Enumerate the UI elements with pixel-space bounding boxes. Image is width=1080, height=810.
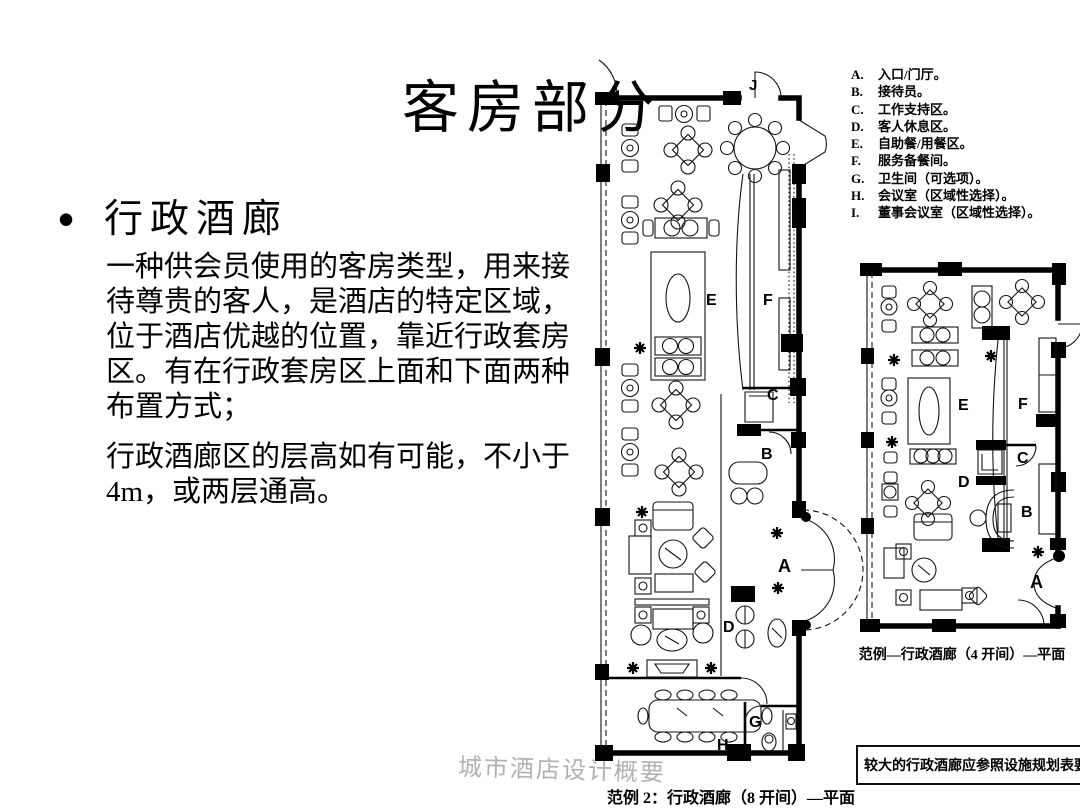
zone-label-j: J xyxy=(749,77,757,94)
legend-label: 卫生间（可选项）。 xyxy=(878,170,1077,187)
sofa xyxy=(920,590,962,610)
window-seating xyxy=(622,364,639,412)
buffet-table xyxy=(919,387,939,435)
sofa xyxy=(629,536,651,574)
legend-key: C. xyxy=(851,101,878,118)
zone-label-e: E xyxy=(706,292,717,309)
diamond-table xyxy=(908,282,953,327)
reception-chair xyxy=(970,510,986,526)
legend-key: F. xyxy=(851,152,878,169)
zone-label-b: B xyxy=(1021,504,1033,521)
booth-table xyxy=(655,337,701,355)
legend-label: 工作支持区。 xyxy=(878,101,1077,118)
plant-icon xyxy=(985,350,997,362)
plant-icon xyxy=(705,662,717,674)
booth-table xyxy=(659,106,710,123)
buffet-zone xyxy=(908,378,950,444)
booth-table xyxy=(972,286,992,328)
floor-plan-small: E F C D B A xyxy=(858,256,1070,640)
console xyxy=(635,599,709,605)
sofa xyxy=(653,502,693,530)
zone-label-d: D xyxy=(723,619,735,636)
note-text: 较大的行政酒廊应参照设施规划表要求 xyxy=(864,755,1080,775)
sink xyxy=(786,714,796,729)
legend-label: 董事会议室（区域性选择）。 xyxy=(878,204,1077,221)
legend-key: A. xyxy=(851,66,878,83)
service-block xyxy=(731,586,755,602)
sideboard xyxy=(647,660,697,677)
toilet xyxy=(762,733,776,751)
diamond-table xyxy=(906,481,951,526)
legend-label: 接待员。 xyxy=(878,83,1077,100)
plant-icon xyxy=(888,354,900,366)
body-paragraph-1: 一种供会员使用的客房类型，用来接待尊贵的客人，是酒店的特定区域，位于酒店优越的位… xyxy=(106,250,576,425)
window-seating xyxy=(622,124,639,172)
legend-label: 客人休息区。 xyxy=(878,118,1077,135)
sofa xyxy=(914,514,952,540)
legend-item: I.董事会议室（区域性选择）。 xyxy=(851,204,1077,221)
lounge-chairs xyxy=(736,606,754,648)
zone-label-g: G xyxy=(749,714,761,731)
plant-icon xyxy=(634,342,646,354)
zone-label-c: C xyxy=(767,387,779,404)
zone-label-a: A xyxy=(1030,572,1043,592)
booth-table xyxy=(910,449,956,464)
legend-key: D. xyxy=(851,118,878,135)
zone-label-a: A xyxy=(778,556,791,576)
diamond-table xyxy=(1000,280,1045,325)
caption-plan-small: 范例—行政酒廊（4 开间）—平面 xyxy=(858,644,1066,664)
legend-label: 会议室（区域性选择）。 xyxy=(878,187,1077,204)
sofa xyxy=(653,609,693,629)
plant-icon xyxy=(771,527,783,539)
legend-key: H. xyxy=(851,187,878,204)
armchair xyxy=(693,623,713,643)
side-table xyxy=(635,520,651,536)
booth-table xyxy=(912,350,958,366)
legend-label: 服务备餐间。 xyxy=(878,152,1077,169)
buffet-zone xyxy=(651,252,705,380)
window-seating xyxy=(882,452,898,517)
plant-icon xyxy=(636,506,648,518)
side-table xyxy=(693,607,709,623)
legend-item: G.卫生间（可选项）。 xyxy=(851,170,1077,187)
zone-label-f: F xyxy=(1018,396,1028,413)
caption-plan-large: 范例 2：行政酒廊（8 开间）—平面 xyxy=(600,784,862,808)
zone-label-c: C xyxy=(1017,450,1029,467)
floor-plan-large: J E F C B A D G H xyxy=(593,58,849,762)
legend-key: B. xyxy=(851,83,878,100)
zone-label-b: B xyxy=(761,446,773,463)
plant-icon xyxy=(627,662,639,674)
plan-small-labels: E F C D B A xyxy=(958,396,1043,592)
armchair xyxy=(631,625,651,645)
side-table xyxy=(896,590,911,605)
plant-icon xyxy=(1032,546,1044,558)
sofa xyxy=(655,574,693,592)
zone-label-e: E xyxy=(958,397,969,414)
zone-label-f: F xyxy=(763,292,773,309)
legend-item: D.客人休息区。 xyxy=(851,118,1077,135)
sofa xyxy=(884,548,904,578)
plan-large-furniture xyxy=(622,106,797,752)
legend-key: I. xyxy=(851,204,878,221)
window-seating xyxy=(622,196,639,244)
legend-label: 入口/门厅。 xyxy=(878,66,1077,83)
side-table xyxy=(635,607,651,623)
booth-table xyxy=(912,327,958,343)
reception-desk xyxy=(729,462,767,504)
legend-list: A.入口/门厅。 B.接待员。 C.工作支持区。 D.客人休息区。 E.自助餐/… xyxy=(851,66,1077,222)
legend-item: C.工作支持区。 xyxy=(851,101,1077,118)
bullet-marker: • xyxy=(58,192,74,246)
legend-key: G. xyxy=(851,170,878,187)
legend-key: E. xyxy=(851,135,878,152)
body-paragraph-2: 行政酒廊区的层高如有可能，不小于4m，或两层通高。 xyxy=(106,440,576,510)
note-box: 较大的行政酒廊应参照设施规划表要求 xyxy=(856,745,1080,785)
legend-item: B.接待员。 xyxy=(851,83,1077,100)
armchair xyxy=(692,527,715,550)
legend-item: E.自助餐/用餐区。 xyxy=(851,135,1077,152)
diamond-table xyxy=(664,126,712,174)
zone-label-d: D xyxy=(958,474,970,491)
armchair xyxy=(694,561,717,584)
side-table xyxy=(635,578,651,594)
zone-label-h: H xyxy=(717,737,729,754)
window-seating xyxy=(881,378,897,424)
window-seating xyxy=(622,428,639,476)
booth-table xyxy=(655,358,701,376)
bullet-heading: 行政酒廊 xyxy=(104,188,288,244)
plant-icon xyxy=(772,582,784,594)
diamond-table xyxy=(655,448,703,496)
slide: 城市酒店设计概要 客房部分 • 行政酒廊 一种供会员使用的客房类型，用来接待尊贵… xyxy=(0,0,1080,810)
legend-item: A.入口/门厅。 xyxy=(851,66,1077,83)
plant-icon xyxy=(886,436,898,448)
legend-item: F.服务备餐间。 xyxy=(851,152,1077,169)
diamond-table xyxy=(652,381,700,429)
window-seating xyxy=(881,286,897,332)
buffet-table xyxy=(666,274,690,322)
legend-label: 自助餐/用餐区。 xyxy=(878,135,1077,152)
legend-item: H.会议室（区域性选择）。 xyxy=(851,187,1077,204)
